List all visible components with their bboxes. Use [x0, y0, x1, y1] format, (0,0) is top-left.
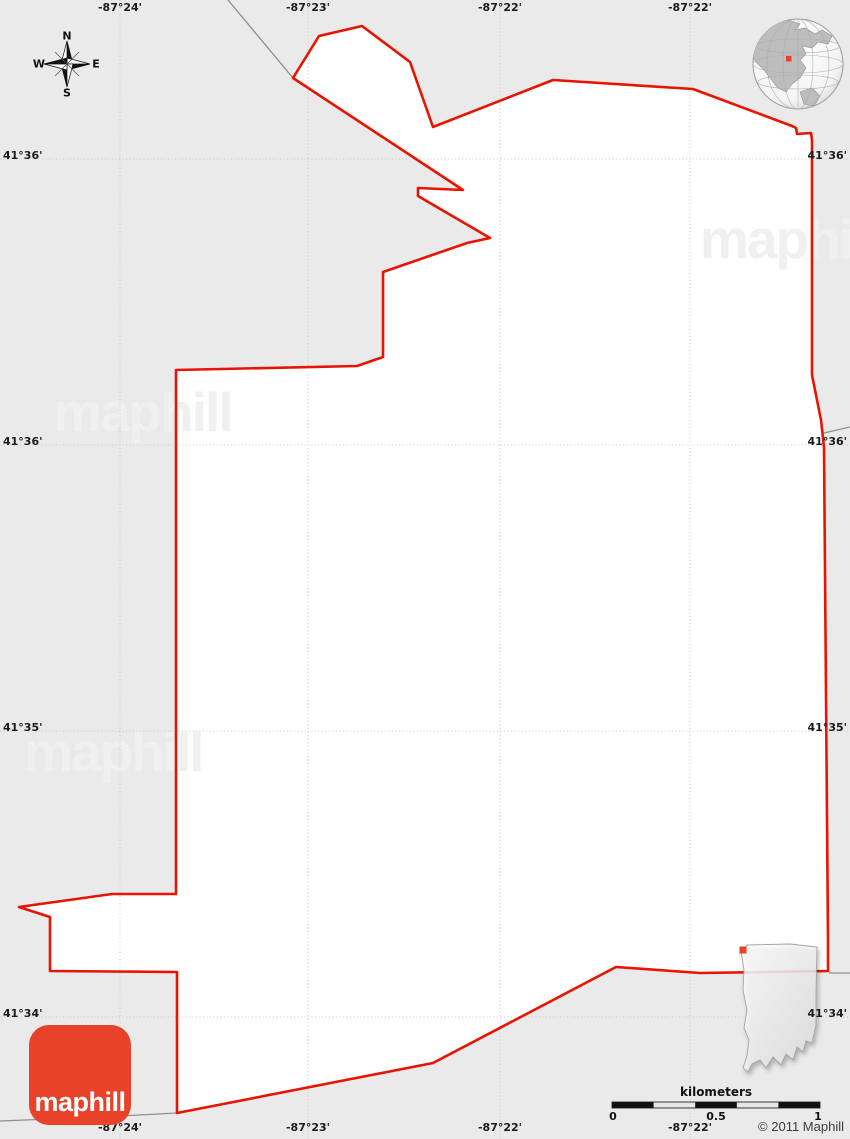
globe-marker: [786, 56, 792, 62]
meridian-label-top-0: -87°24': [98, 2, 142, 14]
map-canvas: maphill maphill maphill: [0, 0, 850, 1139]
maphill-logo[interactable]: maphill: [29, 1025, 131, 1125]
scale-tick-0-5: 0.5: [706, 1110, 726, 1123]
watermark-text: maphill: [53, 381, 232, 443]
meridian-label-bottom-2: -87°22': [478, 1122, 522, 1134]
parallel-label-left-3: 41°34': [3, 1008, 42, 1020]
locator-marker: [740, 947, 747, 954]
watermark-text: maphill: [700, 208, 850, 270]
compass-south-label: S: [63, 87, 71, 100]
meridian-label-top-3: -87°22': [668, 2, 712, 14]
meridian-label-bottom-3: -87°22': [668, 1122, 712, 1134]
parallel-label-left-1: 41°36': [3, 436, 42, 448]
parallel-label-right-3: 41°34': [808, 1008, 847, 1020]
parallel-label-right-2: 41°35': [808, 722, 847, 734]
maphill-logo-text: maphill: [34, 1089, 125, 1116]
scale-tick-0: 0: [609, 1110, 617, 1123]
parallel-label-right-1: 41°36': [808, 436, 847, 448]
compass-east-label: E: [92, 58, 100, 71]
compass-north-label: N: [62, 30, 71, 43]
meridian-label-top-1: -87°23': [286, 2, 330, 14]
parallel-label-left-2: 41°35': [3, 722, 42, 734]
compass-west-label: W: [33, 58, 45, 71]
scale-bar: [612, 1102, 820, 1108]
meridian-label-bottom-1: -87°23': [286, 1122, 330, 1134]
map-graphic: maphill maphill maphill: [0, 0, 850, 1139]
copyright-text: © 2011 Maphill: [758, 1119, 844, 1134]
parallel-label-left-0: 41°36': [3, 150, 42, 162]
scale-bar-title: kilometers: [680, 1085, 752, 1099]
parallel-label-right-0: 41°36': [808, 150, 847, 162]
meridian-label-top-2: -87°22': [478, 2, 522, 14]
